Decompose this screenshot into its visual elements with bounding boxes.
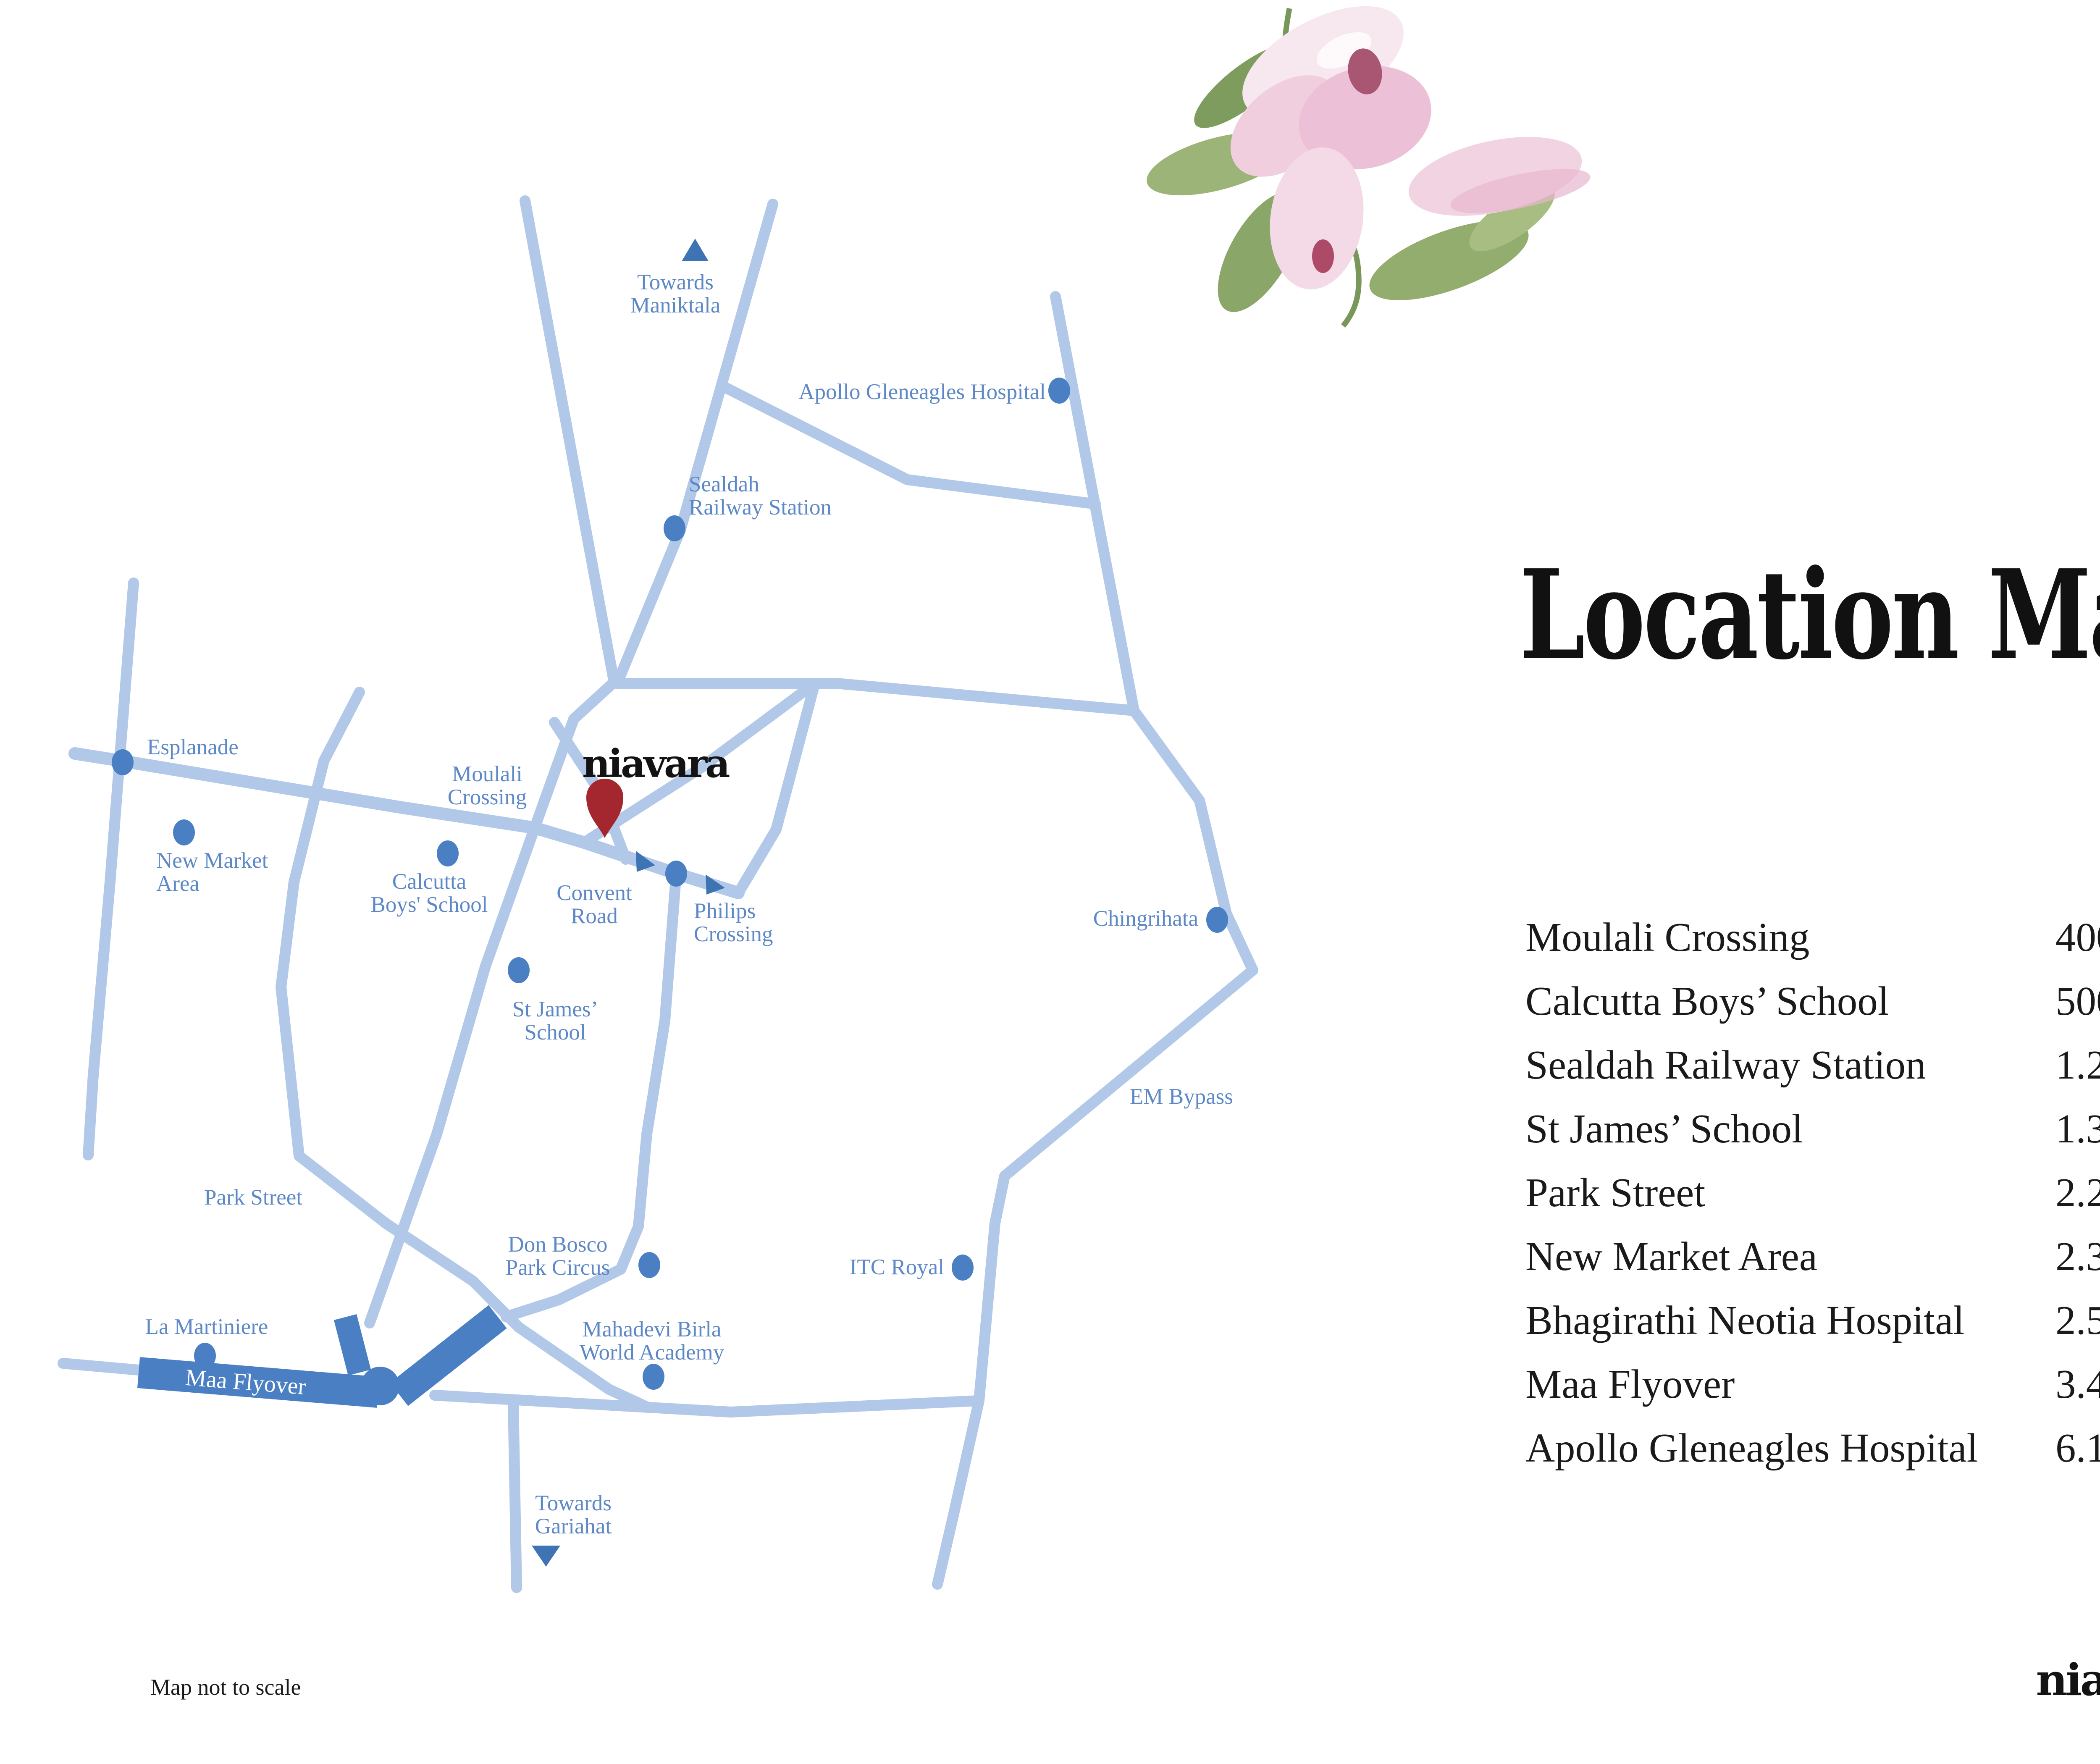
place-name: Park Street xyxy=(1525,1161,1705,1225)
map-label-itc-royal: ITC Royal xyxy=(850,1256,944,1279)
distance-list: Moulali Crossing 400 m Calcutta Boys’ Sc… xyxy=(1525,906,2100,1480)
dot-philips xyxy=(665,861,687,887)
map-label-new-market: New Market Area xyxy=(156,849,268,895)
dot-esplanade xyxy=(112,749,134,775)
place-name: Sealdah Railway Station xyxy=(1525,1033,1926,1097)
dot-st-james xyxy=(508,957,530,983)
map-label-philips: Philips Crossing xyxy=(694,900,773,946)
place-name: Moulali Crossing xyxy=(1525,906,1809,969)
flower-illustration xyxy=(1140,0,1594,326)
map-canvas xyxy=(0,0,2100,1764)
map-label-esplanade: Esplanade xyxy=(147,736,239,759)
map-label-park-street: Park Street xyxy=(204,1186,302,1209)
map-label-don-bosco: Don Bosco Park Circus xyxy=(506,1233,610,1279)
road-connector xyxy=(616,683,1134,711)
dot-mahadevi-birla xyxy=(643,1364,664,1390)
distance-row: Sealdah Railway Station 1.2 km xyxy=(1525,1033,2100,1097)
map-brand-logo: niavara xyxy=(582,744,728,783)
road-flyover-stub xyxy=(63,1363,139,1370)
place-distance: 3.4 km xyxy=(2055,1352,2100,1416)
page-title: Location Map xyxy=(1520,554,2100,676)
distance-row: Moulali Crossing 400 m xyxy=(1525,906,2100,969)
place-name: Maa Flyover xyxy=(1525,1352,1735,1416)
place-name: New Market Area xyxy=(1525,1225,1817,1289)
map-label-calcutta-boys: Calcutta Boys' School xyxy=(370,870,488,916)
dot-don-bosco xyxy=(638,1252,660,1278)
map-label-la-martiniere: La Martiniere xyxy=(145,1315,268,1339)
place-distance: 1.3 km xyxy=(2055,1097,2100,1161)
distance-row: Bhagirathi Neotia Hospital 2.5 km xyxy=(1525,1289,2100,1352)
place-name: Apollo Gleneagles Hospital xyxy=(1525,1416,1978,1480)
arrow-up-maniktala-icon xyxy=(682,239,709,261)
flyover-arm-left xyxy=(345,1317,360,1373)
dot-chingrihata xyxy=(1206,907,1228,933)
place-distance: 500 m xyxy=(2055,969,2100,1033)
flyover-arm-right xyxy=(399,1317,498,1394)
place-distance: 6.1 km xyxy=(2055,1416,2100,1480)
map-label-moulali: Moulali Crossing xyxy=(448,763,527,809)
dot-apollo xyxy=(1048,378,1070,404)
dot-calcutta-boys xyxy=(437,840,459,866)
map-label-em-bypass: EM Bypass xyxy=(1130,1085,1233,1108)
flower-accent xyxy=(1312,239,1334,273)
dot-itc-royal xyxy=(952,1255,974,1281)
distance-row: St James’ School 1.3 km xyxy=(1525,1097,2100,1161)
distance-row: Park Street 2.2 km xyxy=(1525,1161,2100,1225)
place-name: Bhagirathi Neotia Hospital xyxy=(1525,1289,1964,1352)
dot-sealdah xyxy=(664,515,685,541)
dot-la-martiniere xyxy=(194,1343,216,1369)
footer-brand-logo: niavara xyxy=(2036,1658,2100,1702)
distance-row: Apollo Gleneagles Hospital 6.1 km xyxy=(1525,1416,2100,1480)
distance-row: Maa Flyover 3.4 km xyxy=(1525,1352,2100,1416)
map-label-sealdah: Sealdah Railway Station xyxy=(689,473,832,519)
place-distance: 2.2 km xyxy=(2055,1161,2100,1225)
arrow-down-gariahat-icon xyxy=(532,1546,560,1567)
map-label-st-james: St James’ School xyxy=(512,998,598,1044)
place-dots xyxy=(112,378,1228,1390)
map-label-mahadevi-birla: Mahadevi Birla World Academy xyxy=(580,1318,724,1364)
map-scale-note: Map not to scale xyxy=(150,1674,301,1700)
road-gariahat xyxy=(513,1403,517,1588)
place-distance: 1.2 km xyxy=(2055,1033,2100,1097)
map-label-convent-road: Convent Road xyxy=(556,882,632,928)
dot-new-market xyxy=(173,819,195,845)
distance-row: New Market Area 2.3 km xyxy=(1525,1225,2100,1289)
map-label-towards-maniktala: Towards Maniktala xyxy=(630,271,721,317)
map-label-apollo: Apollo Gleneagles Hospital xyxy=(798,381,1046,404)
location-map-page: Towards Maniktala Apollo Gleneagles Hosp… xyxy=(0,0,2100,1764)
place-name: Calcutta Boys’ School xyxy=(1525,969,1889,1033)
distance-row: Calcutta Boys’ School 500 m xyxy=(1525,969,2100,1033)
place-distance: 2.3 km xyxy=(2055,1225,2100,1289)
place-distance: 2.5 km xyxy=(2055,1289,2100,1352)
map-label-chingrihata: Chingrihata xyxy=(1093,907,1198,930)
place-name: St James’ School xyxy=(1525,1097,1803,1161)
road-left-vertical xyxy=(88,583,134,1155)
flyover-junction xyxy=(361,1367,399,1405)
place-distance: 400 m xyxy=(2055,906,2100,969)
map-label-towards-gariahat: Towards Gariahat xyxy=(535,1492,612,1538)
